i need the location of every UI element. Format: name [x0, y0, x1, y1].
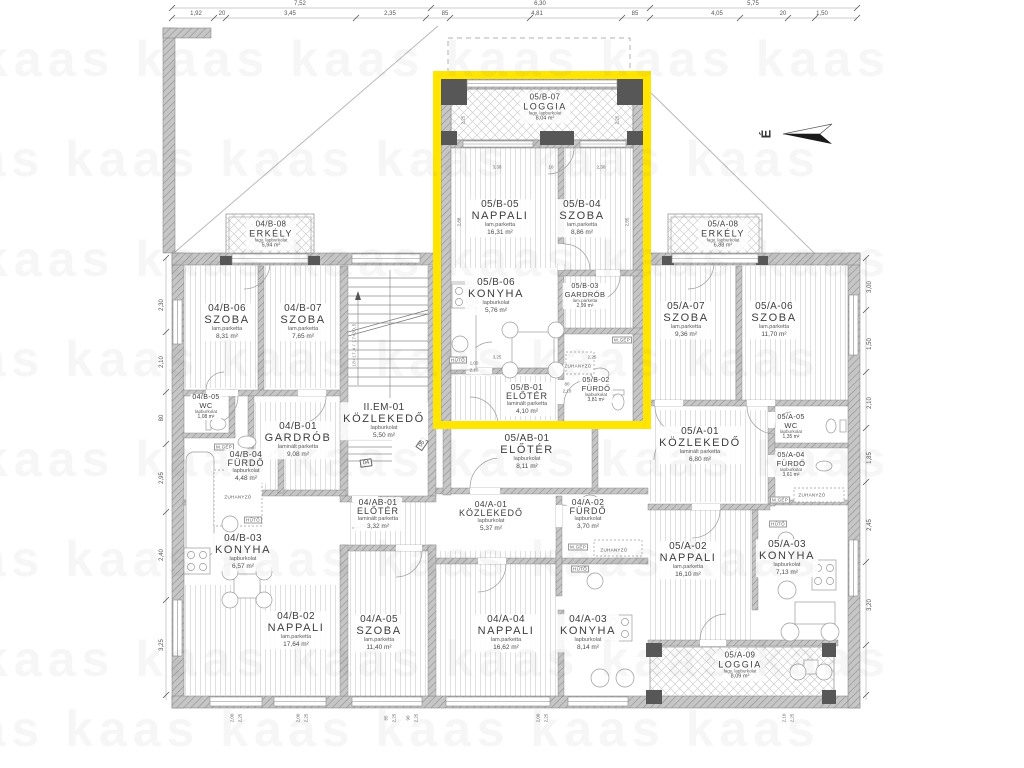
room-area: 9,36 m²: [663, 331, 708, 338]
room-area: 6,57 m²: [215, 563, 271, 570]
room-label-04b01: 04/B-01 GARDRÓB laminált parketta 9,08 m…: [262, 421, 335, 459]
fridge-label: HŰTŐ: [571, 566, 589, 573]
room-label-04a02: 04/A-02 FÜRDŐ lapburkolat 3,70 m²: [567, 497, 610, 531]
dim-label: 3,45: [284, 11, 296, 17]
room-area: 5,50 m²: [343, 432, 425, 439]
room-name: NAPPALI: [660, 553, 717, 565]
room-label-05a07: 05/A-07 SZOBA lam.parketta 9,36 m²: [660, 301, 711, 339]
toilet-tank: [840, 420, 846, 432]
room-area: 8,86 m²: [559, 229, 604, 236]
dim-label: 2,10: [159, 356, 165, 368]
dim-label: 85: [384, 715, 389, 720]
room-area: 5,94 m²: [249, 244, 293, 250]
dim-label: 2,25: [461, 116, 466, 125]
dim-label: 2,45: [867, 519, 873, 531]
room-material: lapburkolat: [228, 469, 265, 475]
fridge-label: HŰTŐ: [449, 357, 467, 364]
room-label-05ab01: 05/AB-01 ELŐTÉR lapburkolat 8,11 m²: [497, 433, 557, 471]
room-label-04b05: 04/B-05 WC lapburkolat 1,08 m²: [190, 394, 221, 420]
room-label-05b03: 05/B-03 GARDRÓB lam.parketta 2,99 m²: [563, 283, 608, 309]
dim-label: 2,10: [470, 368, 479, 373]
washbasin-icon: [238, 436, 256, 448]
room-area: 11,40 m²: [356, 644, 401, 651]
dim-label: 2,00: [230, 714, 235, 723]
room-label-05b05: 05/B-05 NAPPALI lam.parketta 16,31 m²: [469, 199, 532, 237]
room-label-05b06: 05/B-06 KONYHA lapburkolat 5,76 m²: [465, 277, 527, 315]
dim-label: 2,25: [414, 714, 419, 723]
dim-label: 4,81: [531, 11, 543, 17]
dim-label: 80: [564, 382, 569, 387]
dim-label: 1,50: [867, 338, 873, 350]
room-name: NAPPALI: [268, 623, 325, 635]
dim-label: 2,25: [790, 714, 795, 723]
room-area: 3,70 m²: [570, 523, 607, 530]
dim-label: 2,00: [536, 714, 541, 723]
table-icon: [234, 574, 260, 598]
room-area: 8,04 m²: [523, 117, 567, 123]
room-area: 11,70 m²: [751, 331, 796, 338]
room-label-05a09: 05/A-09 LOGGIA fagy. lapburkolat 8,09 m²: [715, 650, 765, 681]
room-name: KONYHA: [468, 289, 524, 301]
room-label-05a05: 05/A-05 WC lapburkolat 1,35 m²: [775, 414, 806, 440]
dim-label: 4,05: [711, 11, 723, 17]
stove-icon: [184, 548, 210, 574]
room-area: 6,88 m²: [701, 244, 745, 250]
fridge-label: HŰTŐ: [244, 517, 262, 524]
dim-label: 5,75: [747, 1, 759, 7]
north-letter: É: [759, 130, 774, 139]
dim-label: 2,40: [159, 549, 165, 561]
room-area: 7,13 m²: [759, 569, 815, 576]
room-label-05a04: 05/A-04 FÜRDŐ lapburkolat 3,61 m²: [775, 452, 808, 478]
dim-label: 2,25: [238, 714, 243, 723]
dim-label: 1,92: [190, 11, 202, 17]
north-arrow-icon: [783, 124, 832, 144]
room-area: 8,14 m²: [560, 644, 616, 651]
room-name: KONYHA: [560, 626, 616, 638]
dim-label: 85: [632, 11, 639, 17]
dim-label: 3,30: [493, 165, 502, 170]
room-label-05a02: 05/A-02 NAPPALI lam.parketta 16,10 m²: [657, 541, 720, 579]
washbasin-icon: [816, 461, 832, 471]
room-name: NAPPALI: [478, 626, 535, 638]
dim-label: 2,25: [588, 355, 597, 360]
dim-label: 2,10: [867, 397, 873, 409]
room-label-04a01: 04/A-01 KÖZLEKEDŐ lapburkolat 5,37 m²: [456, 499, 526, 533]
room-area: 5,76 m²: [468, 307, 524, 314]
highlighted-apartment-05b[interactable]: [433, 71, 651, 429]
dim-label: 2,25: [544, 714, 549, 723]
shower-label: ZUHANYZÓ: [223, 495, 252, 500]
fridge-icon: [587, 573, 603, 589]
dim-label: 1,85: [867, 452, 873, 464]
room-name: KONYHA: [759, 551, 815, 563]
room-label-04ab01: 04/AB-01 ELŐTÉR laminált parketta 3,32 m…: [354, 497, 402, 531]
room-material: lapburkolat: [570, 517, 607, 523]
dim-label: 2,30: [597, 165, 606, 170]
dim-label: 7,52: [294, 1, 306, 7]
washer-label: M.GÉP: [612, 337, 632, 344]
room-label-04b07: 04/B-07 SZOBA lam.parketta 7,65 m²: [277, 303, 328, 341]
room-label-05b02: 05/B-02 FÜRDŐ lapburkolat 3,81 m²: [580, 377, 613, 403]
room-name: KONYHA: [215, 545, 271, 557]
room-area: 16,31 m²: [472, 229, 529, 236]
room-label-04a03: 04/A-03 KONYHA lapburkolat 8,14 m²: [557, 614, 619, 652]
fridge-icon: [222, 516, 238, 532]
shower-label: ZUHANYZÓ: [599, 548, 628, 553]
stair-note: 18×17,4 / 17×30,5: [352, 323, 357, 366]
dim-label: 85: [442, 11, 449, 17]
room-name: SZOBA: [280, 315, 325, 327]
dim-label: 2,10: [782, 714, 787, 723]
room-label-05a01: 05/A-01 KÖZLEKEDŐ laminált parketta 6,80…: [656, 426, 744, 464]
room-area: 8,09 m²: [718, 675, 762, 681]
room-area: 16,62 m²: [478, 644, 535, 651]
table-icon: [795, 602, 835, 624]
room-label-04a05: 04/A-05 SZOBA lam.parketta 11,40 m²: [353, 614, 404, 652]
room-label-05b04: 05/B-04 SZOBA lam.parketta 8,86 m²: [556, 199, 607, 237]
dim-label: 20: [780, 11, 787, 17]
room-name: SZOBA: [663, 313, 708, 325]
room-area: 5,37 m²: [459, 525, 523, 532]
room-label-05a08: 05/A-08 ERKÉLY fagy. lapburkolat 6,88 m²: [698, 219, 748, 250]
stair-flag-04: 04: [360, 458, 373, 468]
room-name: SZOBA: [559, 211, 604, 223]
dim-label: 2,85: [625, 218, 630, 227]
room-label-04b02: 04/B-02 NAPPALI lam.parketta 17,64 m²: [265, 611, 328, 649]
bathtub-icon: [186, 452, 214, 556]
dim-label: 6,30: [534, 1, 546, 7]
room-area: 7,65 m²: [280, 333, 325, 340]
dim-label: 2,88: [457, 218, 462, 227]
room-label-04b06: 04/B-06 SZOBA lam.parketta 8,31 m²: [201, 303, 252, 341]
dim-label: 90: [406, 715, 411, 720]
dim-label: 2,25: [392, 714, 397, 723]
room-material: laminált parketta: [357, 517, 399, 523]
room-area: 17,64 m²: [268, 641, 325, 648]
room-name: NAPPALI: [472, 211, 529, 223]
room-label-04b03: 04/B-03 KONYHA lapburkolat 6,57 m²: [212, 533, 274, 571]
room-area: 9,08 m²: [265, 451, 332, 458]
room-area: 4,10 m²: [506, 408, 548, 415]
room-label-04b08: 04/B-08 ERKÉLY fagy. lapburkolat 5,94 m²: [246, 219, 296, 250]
room-label-iiem01: II.EM-01 KÖZLEKEDŐ lapburkolat 5,50 m²: [340, 402, 428, 440]
room-name: SZOBA: [751, 313, 796, 325]
room-label-05b07: 05/B-07 LOGGIA fagy. lapburkolat 8,04 m²: [520, 92, 570, 123]
dim-label: 2,35: [384, 11, 396, 17]
room-label-05a03: 05/A-03 KONYHA lapburkolat 7,13 m²: [756, 539, 818, 577]
dim-label: 3,20: [867, 599, 873, 611]
room-area: 1,08 m²: [192, 415, 219, 420]
room-name: SZOBA: [356, 626, 401, 638]
room-area: 3,61 m²: [777, 473, 806, 478]
dim-label: 1,50: [816, 11, 828, 17]
dim-label: 2,10: [563, 389, 572, 394]
room-name: KÖZLEKEDŐ: [659, 438, 741, 450]
room-name: ELŐTÉR: [500, 445, 554, 457]
room-area: 16,10 m²: [660, 571, 717, 578]
shower-label: ZUHANYZÓ: [797, 493, 826, 498]
dim-label: 3,25: [159, 639, 165, 651]
room-name: SZOBA: [204, 315, 249, 327]
dim-label: 2,00: [296, 714, 301, 723]
dim-label: 2,95: [159, 472, 165, 484]
toilet-icon: [826, 419, 836, 433]
room-name: GARDRÓB: [265, 433, 332, 445]
dim-label: 10: [548, 165, 553, 170]
dim-label: 2,25: [615, 116, 620, 125]
dim-label: 3,00: [867, 281, 873, 293]
room-area: 1,35 m²: [777, 435, 804, 440]
dim-label: 20: [219, 11, 226, 17]
dim-label: 1,00: [470, 361, 479, 366]
room-area: 3,32 m²: [357, 523, 399, 530]
room-area: 8,31 m²: [204, 333, 249, 340]
dim-label: 80: [159, 415, 165, 422]
room-label-05a06: 05/A-06 SZOBA lam.parketta 11,70 m²: [748, 301, 799, 339]
dim-label: 3,25: [493, 355, 502, 360]
dim-label: 2,30: [159, 299, 165, 311]
dim-label: 2,25: [304, 714, 309, 723]
room-name: KÖZLEKEDŐ: [343, 414, 425, 426]
room-label-05b01: 05/B-01 ELŐTÉR laminált parketta 4,10 m²: [503, 382, 551, 416]
fridge-label: HŰTŐ: [769, 521, 787, 528]
shower-label: ZUHANYZÓ: [563, 364, 592, 369]
room-label-04a04: 04/A-04 NAPPALI lam.parketta 16,62 m²: [475, 614, 538, 652]
washer-label: M.GÉP: [770, 497, 790, 504]
room-area: 2,99 m²: [565, 304, 606, 309]
room-area: 8,11 m²: [500, 463, 554, 470]
room-area: 6,80 m²: [659, 456, 741, 463]
washer-label: M.GÉP: [568, 544, 588, 551]
room-area: 3,81 m²: [582, 398, 611, 403]
floor-plan-page: 04/B-06 SZOBA lam.parketta 8,31 m² 04/B-…: [0, 0, 1024, 768]
room-area: 4,48 m²: [228, 475, 265, 482]
room-material: laminált parketta: [506, 402, 548, 408]
room-label-04b04: 04/B-04 FÜRDŐ lapburkolat 4,48 m²: [225, 449, 268, 483]
